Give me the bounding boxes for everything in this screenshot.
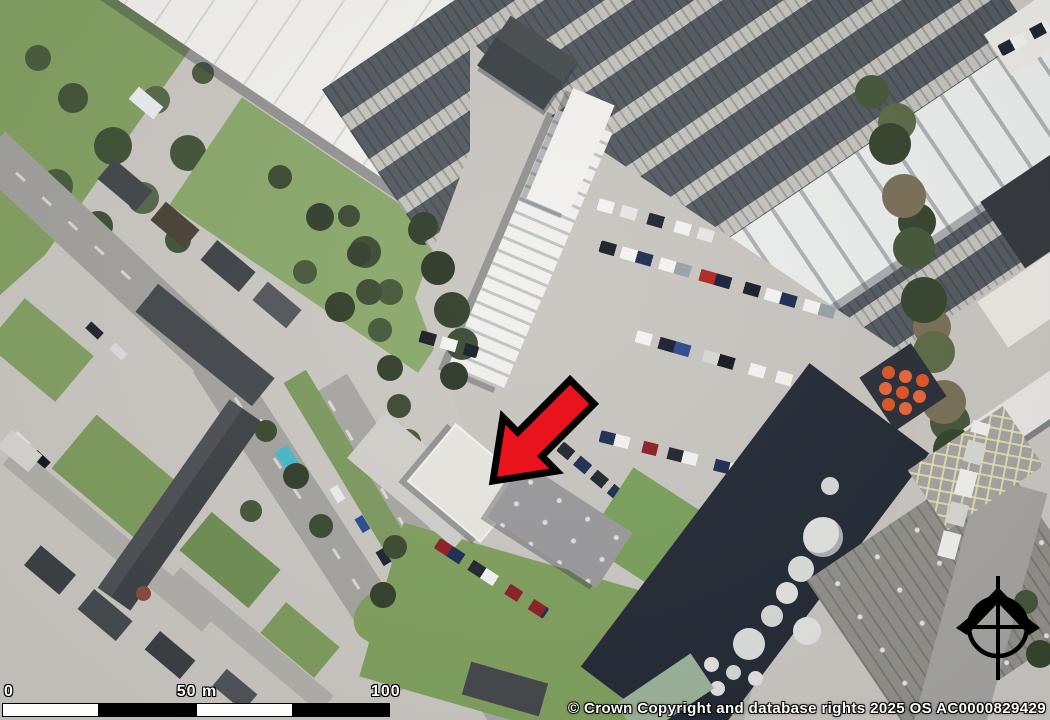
north-compass-icon: [948, 568, 1048, 686]
scale-bar-segment: [196, 703, 293, 717]
scale-bar-segment: [293, 703, 390, 717]
scale-label-50: 50 m: [177, 683, 217, 701]
map-canvas: 0 50 m 100 m © Crown Copyright and datab…: [0, 0, 1050, 720]
photo-tint: [0, 0, 1050, 720]
scale-bar-segments: [2, 703, 390, 717]
attribution-text: © Crown Copyright and database rights 20…: [568, 700, 1046, 717]
scale-label-0: 0: [4, 683, 14, 701]
scale-bar: 0 50 m 100 m: [0, 682, 440, 720]
scale-bar-segment: [2, 703, 99, 717]
aerial-photo: [0, 0, 1050, 720]
scale-bar-segment: [99, 703, 196, 717]
